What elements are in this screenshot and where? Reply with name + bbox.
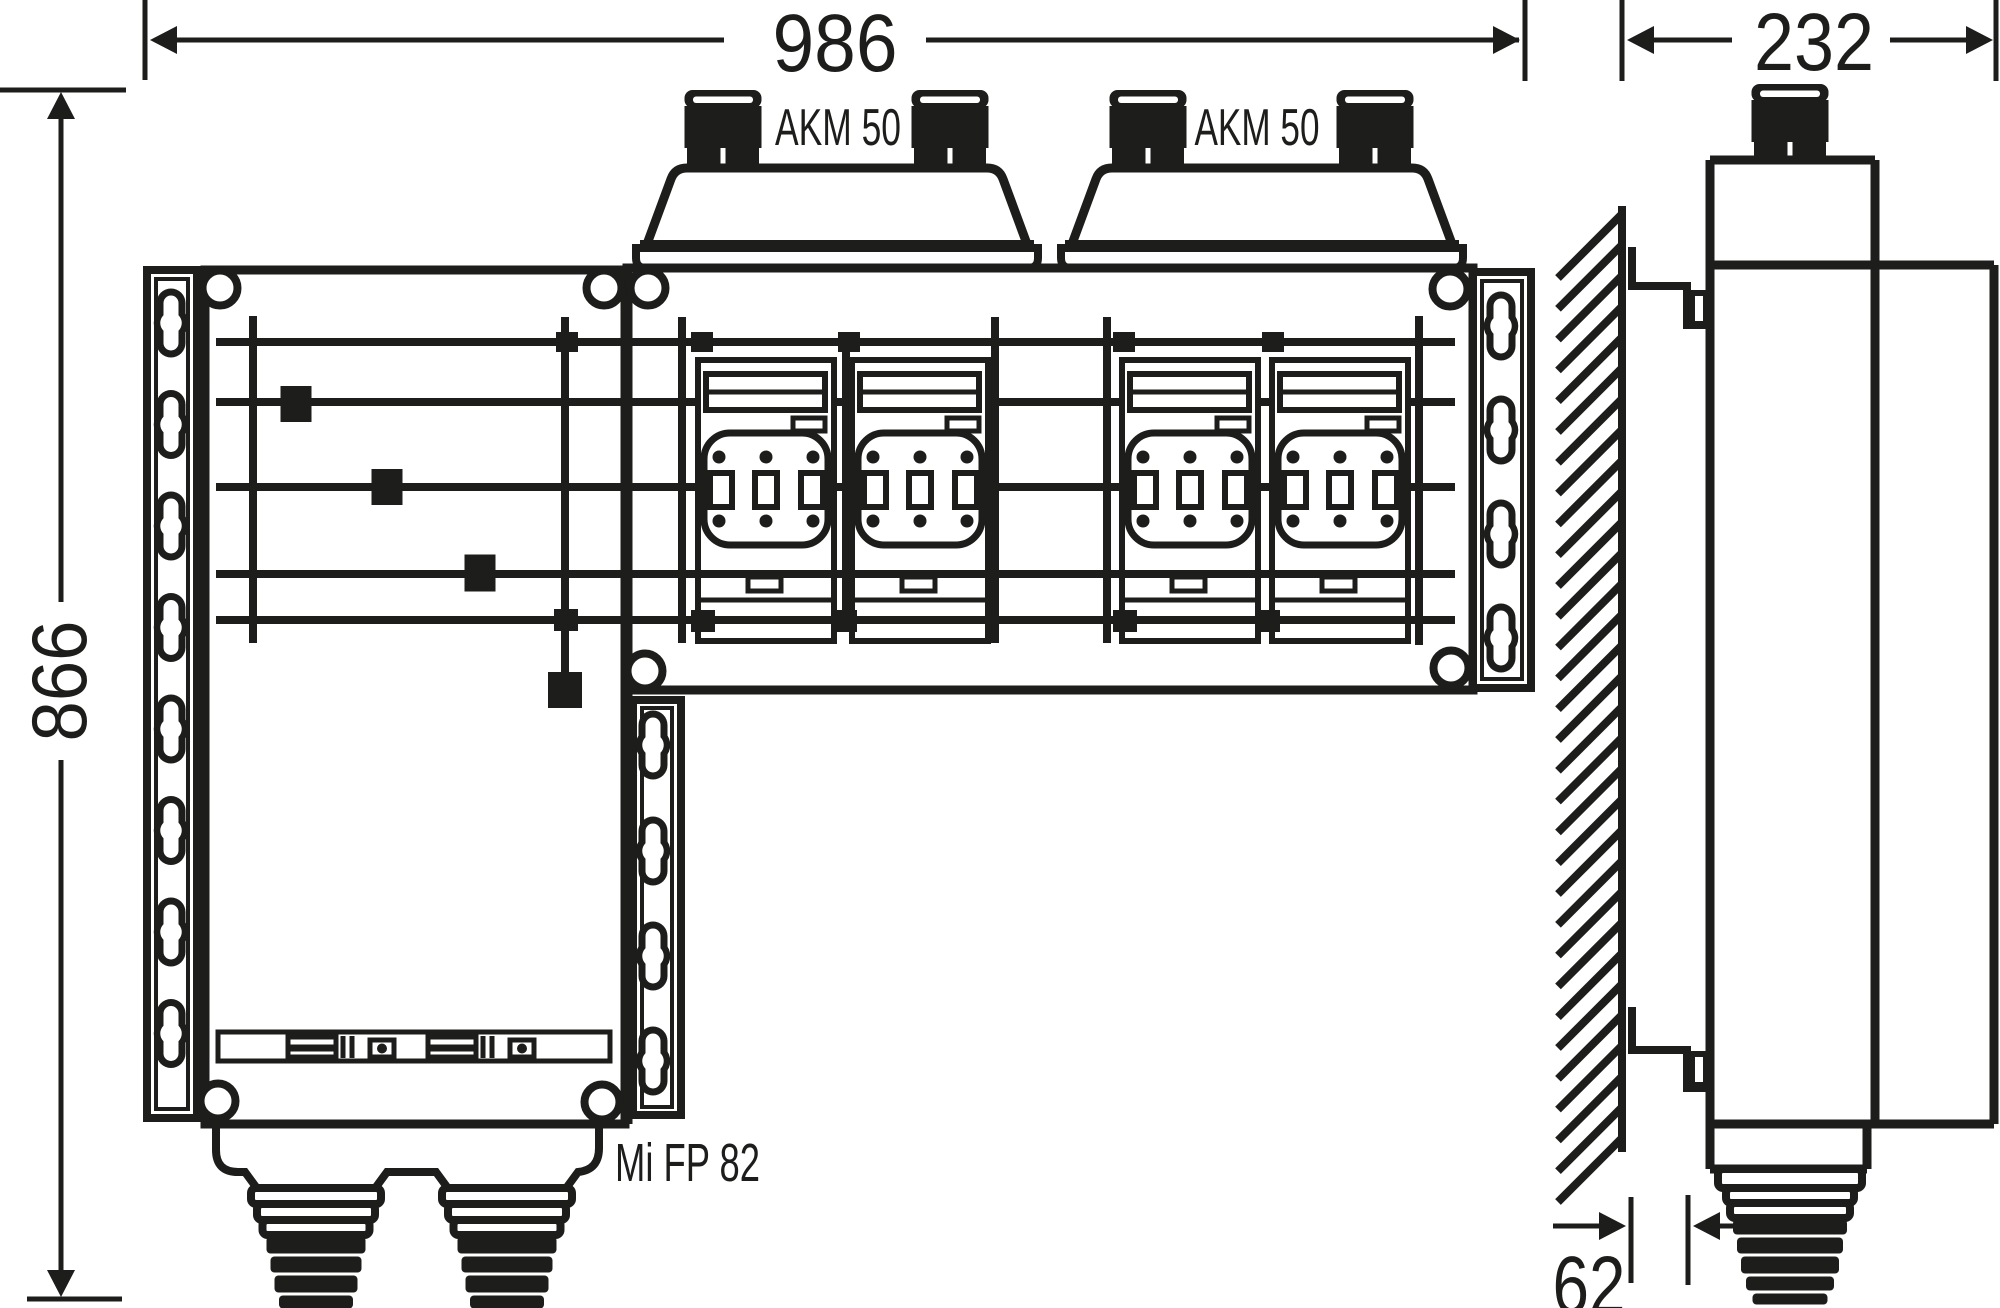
svg-text:986: 986 xyxy=(773,0,898,89)
svg-text:AKM 50: AKM 50 xyxy=(775,99,901,157)
svg-text:232: 232 xyxy=(1754,0,1874,88)
svg-text:866: 866 xyxy=(15,621,103,742)
svg-text:AKM 50: AKM 50 xyxy=(1195,99,1320,157)
svg-text:Mi FP 82: Mi FP 82 xyxy=(615,1133,760,1193)
svg-text:62: 62 xyxy=(1553,1240,1626,1308)
